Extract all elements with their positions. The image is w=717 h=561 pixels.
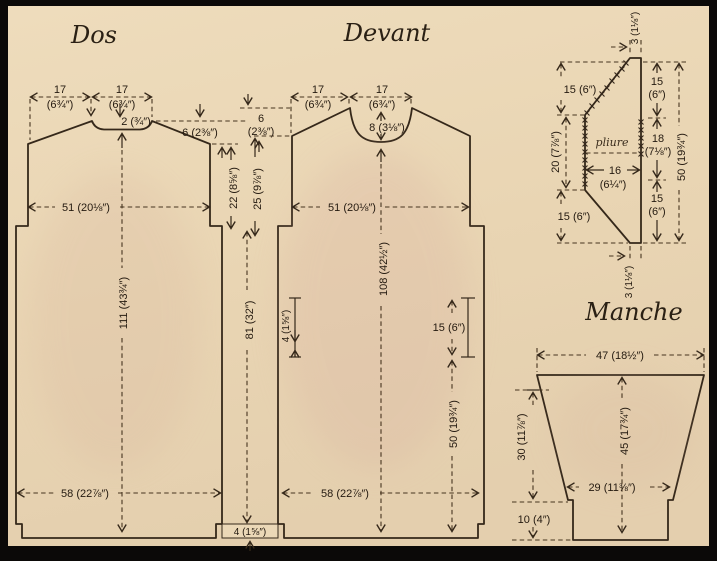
devant-neck-num: 17 [376, 84, 388, 96]
dos-shoulder-in: (6¾″) [47, 99, 74, 111]
devant-side-lower: 50 (19¾″) [448, 400, 460, 448]
manche-cuff: 10 (4″) [518, 514, 551, 526]
dos-hem: 58 (22⅞″) [61, 488, 109, 500]
devant-side-slit: 4 (1⅝″) [281, 310, 292, 342]
pattern-schematic-page: Dos 17 (6¾″) 17 (6¾″) 2 (¾″) 6 (2⅜″) 51 … [0, 0, 717, 561]
manche-title: Manche [584, 298, 682, 326]
dos-neck-depth: 2 (¾″) [121, 116, 151, 128]
collar-width-in: (6¼″) [600, 179, 627, 191]
devant-shading [280, 150, 470, 470]
collar-total-height: 50 (19¾″) [676, 133, 688, 181]
devant-hem: 58 (22⅞″) [321, 488, 369, 500]
manche-underarm: 30 (11⅞″) [516, 413, 528, 460]
collar-right-upper-num: 15 [651, 76, 663, 88]
devant-neck-in: (6¾″) [369, 99, 396, 111]
dos-length: 111 (43¾″) [118, 277, 130, 329]
manche-wrist: 29 (11⅜″) [588, 482, 635, 494]
back-armhole: 22 (8⅝″) [228, 167, 240, 209]
collar-bottom-width: 3 (1⅛″) [624, 266, 635, 298]
dos-shading [30, 170, 200, 470]
devant-chest: 51 (20⅛″) [328, 202, 376, 214]
dos-chest: 51 (20⅛″) [62, 202, 110, 214]
dos-neck-num: 17 [116, 84, 128, 96]
collar-width-num: 16 [609, 165, 621, 177]
dos-title: Dos [70, 21, 117, 49]
devant-shoulder-num: 17 [312, 84, 324, 96]
collar-left-middle: 20 (7⅞″) [550, 131, 562, 173]
collar-left-lower: 15 (6″) [558, 211, 591, 223]
manche-top-width: 47 (18½″) [596, 350, 644, 362]
collar-fold-label: pliure [596, 136, 629, 149]
side-seam: 81 (32″) [244, 301, 256, 340]
dos-neck-in: (6¾″) [109, 99, 136, 111]
devant-neck-depth: 8 (3⅛″) [369, 122, 405, 134]
devant-side-detail: 15 (6″) [433, 322, 466, 334]
hem-band: 4 (1⅝″) [234, 527, 266, 538]
dos-shoulder-num: 17 [54, 84, 66, 96]
devant-length: 108 (42½″) [378, 242, 390, 296]
devant-title: Devant [343, 19, 431, 47]
collar-top-width: 3 (1⅛″) [630, 12, 641, 44]
devant-shoulder-in: (6¾″) [305, 99, 332, 111]
pattern-diagram: Dos 17 (6¾″) 17 (6¾″) 2 (¾″) 6 (2⅜″) 51 … [0, 0, 717, 561]
collar-left-upper: 15 (6″) [564, 84, 597, 96]
collar-right-lower-in: (6″) [648, 206, 665, 218]
front-drop-num: 6 [258, 113, 264, 125]
manche-length: 45 (17¾″) [619, 407, 631, 455]
collar-right-middle-num: 18 [652, 133, 664, 145]
collar-right-middle-in: (7⅛″) [645, 146, 672, 158]
collar-right-upper-in: (6″) [648, 89, 665, 101]
front-armhole: 25 (9⅞″) [252, 168, 264, 210]
collar-right-lower-num: 15 [651, 193, 663, 205]
dos-shoulder-drop: 6 (2⅜″) [182, 127, 218, 139]
